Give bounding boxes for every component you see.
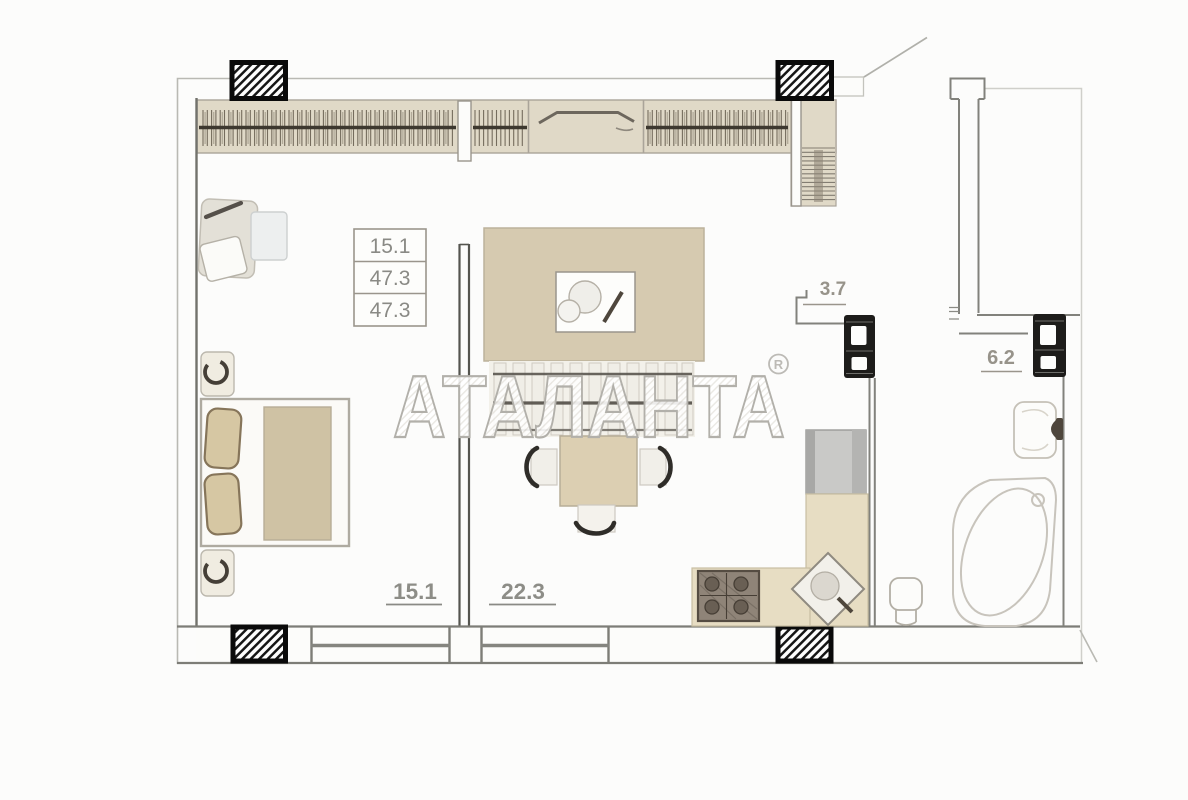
svg-text:15.1: 15.1 xyxy=(393,579,437,604)
svg-text:3.7: 3.7 xyxy=(820,279,846,300)
svg-text:R: R xyxy=(774,357,784,372)
svg-text:6.2: 6.2 xyxy=(987,347,1015,369)
svg-text:15.1: 15.1 xyxy=(370,235,411,258)
svg-text:47.3: 47.3 xyxy=(370,299,411,322)
svg-text:АТАЛАНТА: АТАЛАНТА xyxy=(393,357,785,456)
svg-text:22.3: 22.3 xyxy=(501,579,545,604)
svg-text:47.3: 47.3 xyxy=(370,267,411,290)
